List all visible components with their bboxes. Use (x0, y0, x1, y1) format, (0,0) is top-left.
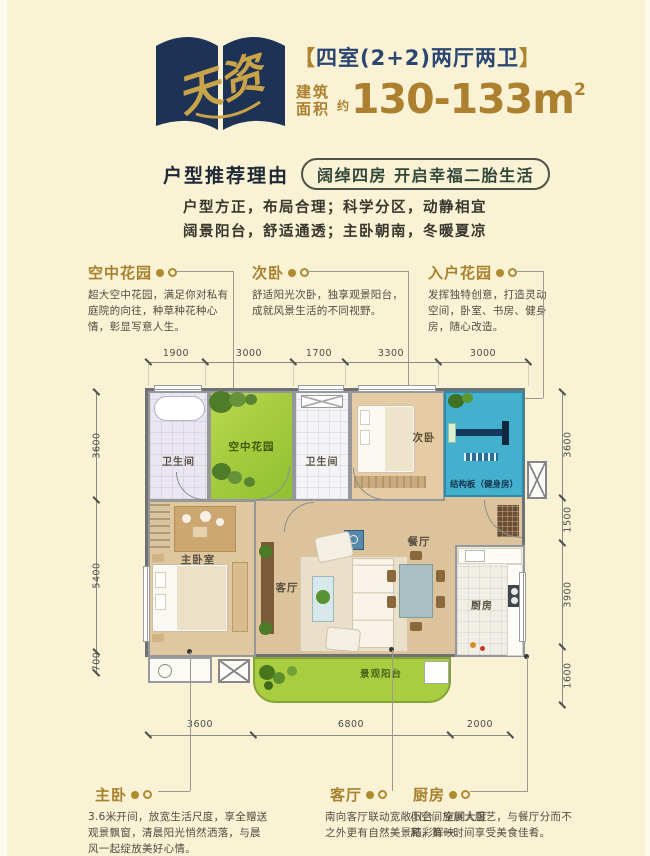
pillow-icon (360, 410, 370, 425)
burner-icon (511, 597, 518, 604)
dim-label: 6800 (331, 719, 371, 730)
chair-icon (436, 596, 445, 608)
pillow-icon (155, 572, 166, 588)
fruit-icon (470, 642, 476, 648)
callout-head: 主卧 (95, 784, 275, 805)
room-bathroom-2: 卫生间 (294, 391, 350, 501)
dim-label: 1500 (563, 500, 574, 540)
dim-label: 3300 (371, 348, 411, 359)
room-balcony: 景观阳台 (253, 657, 451, 703)
window-icon (298, 385, 344, 392)
extension-line (293, 364, 294, 386)
plant-icon (245, 394, 257, 405)
connector-line (190, 652, 191, 791)
bay-window-icon (148, 657, 212, 683)
dim-label: 3600 (563, 425, 574, 465)
dim-label: 5400 (92, 556, 103, 596)
room-label: 主卧室 (168, 552, 228, 567)
dim-label: 3000 (229, 348, 269, 359)
callout-desc: 3.6米开间，放宽生活尺度，享全赠送观景飘窗，清晨阳光悄然洒落，与晨风一起绽放美… (88, 810, 270, 856)
extension-line (438, 364, 439, 386)
bathtub-icon (154, 396, 205, 421)
room-label: 空中花园 (214, 439, 289, 454)
extension-line (205, 364, 206, 386)
burner-icon (511, 588, 518, 595)
dim-label: 700 (92, 642, 103, 682)
dining-table-icon (399, 564, 433, 618)
flyer-page: 天资 【四室(2+2)两厅两卫】 建筑 面积 约 130-133m2 户型推荐理… (0, 0, 650, 856)
dim-label: 1900 (156, 348, 196, 359)
plant-icon (228, 471, 242, 484)
dim-label: 3600 (180, 719, 220, 730)
room-label: 厨房 (461, 597, 503, 612)
callout-title: 客厅 (330, 784, 362, 805)
dim-label: 1600 (563, 656, 574, 696)
washer-icon (424, 661, 449, 684)
connector-line (527, 657, 528, 792)
cushion-icon (182, 514, 191, 523)
nightstand-icon (152, 634, 164, 642)
sink-icon (465, 550, 485, 562)
gym-equipment-icon (448, 423, 456, 443)
window-icon (154, 385, 202, 392)
dim-label: 3900 (563, 575, 574, 615)
cushion-icon (200, 511, 211, 522)
nightstand-icon (152, 554, 164, 562)
room-label: 卫生间 (296, 453, 348, 468)
window-icon (143, 566, 150, 642)
plant-icon (273, 672, 285, 684)
elevator-x-icon (527, 461, 547, 499)
plant-icon (264, 681, 273, 690)
chair-icon (410, 622, 422, 631)
dot-ring-icon (461, 790, 470, 799)
plant-icon (229, 392, 246, 407)
window-icon (519, 572, 526, 642)
callout-head: 厨房 (413, 784, 588, 805)
dim-label: 3000 (463, 348, 503, 359)
callout-kitchen: 厨房 小空间施展大厨艺，与餐厅分而不离，第一时间享受美食佳肴。 (413, 784, 588, 842)
dot-solid-icon (366, 791, 374, 799)
plant-icon (259, 622, 272, 635)
window-icon (358, 385, 436, 392)
callout-title: 主卧 (95, 784, 127, 805)
plant-icon (244, 477, 255, 487)
room-label: 次卧 (406, 430, 442, 445)
room-master-bedroom: 主卧室 (148, 500, 256, 657)
chair-icon (410, 551, 422, 560)
callout-title: 厨房 (413, 784, 445, 805)
dim-label: 2000 (460, 719, 500, 730)
room-gym: 结构板（健身房） (444, 391, 524, 497)
armchair-icon (325, 626, 361, 652)
tea-table-icon (192, 526, 208, 538)
dresser-icon (232, 562, 248, 632)
chair-icon (387, 570, 396, 582)
chair-icon (436, 570, 445, 582)
dot-ring-icon (378, 790, 387, 799)
extension-line (148, 364, 149, 386)
extension-line (528, 364, 529, 386)
pillow-icon (360, 430, 370, 445)
cushion-icon (216, 518, 224, 526)
dim-label: 1700 (299, 348, 339, 359)
plant-icon (287, 666, 297, 676)
dim-label: 3600 (92, 426, 103, 466)
plant-icon (316, 590, 330, 604)
room-label: 景观阳台 (345, 666, 417, 680)
plant-icon (462, 393, 473, 403)
bay-window-icon (301, 395, 343, 408)
dimension-line-bottom (148, 735, 510, 736)
callout-desc: 小空间施展大厨艺，与餐厅分而不离，第一时间享受美食佳肴。 (410, 810, 586, 842)
pillow-icon (155, 594, 166, 610)
room-kitchen: 厨房 (455, 545, 525, 657)
gym-equipment-icon (454, 429, 506, 436)
floor-plan: 卫生间 空中花园 卫生间 次卧 (0, 0, 650, 856)
fruit-icon (480, 646, 485, 651)
blanket-icon (177, 566, 226, 630)
wardrobe-icon (150, 504, 170, 548)
dot-solid-icon (131, 791, 139, 799)
shaft-x-icon (218, 659, 250, 683)
dot-ring-icon (143, 790, 152, 799)
callout-master-bedroom: 主卧 3.6米开间，放宽生活尺度，享全赠送观景飘窗，清晨阳光悄然洒落，与晨风一起… (95, 784, 275, 856)
dot-solid-icon (449, 791, 457, 799)
room-label: 结构板（健身房） (446, 478, 522, 490)
plant-icon (259, 545, 272, 558)
gym-equipment-icon (502, 421, 509, 445)
room-label: 卫生间 (150, 453, 207, 468)
chair-icon (387, 596, 396, 608)
fan-icon (158, 664, 172, 678)
room-label: 餐厅 (398, 534, 440, 549)
extension-line (345, 364, 346, 386)
treadmill-icon (464, 453, 498, 461)
connector-line (392, 650, 393, 791)
